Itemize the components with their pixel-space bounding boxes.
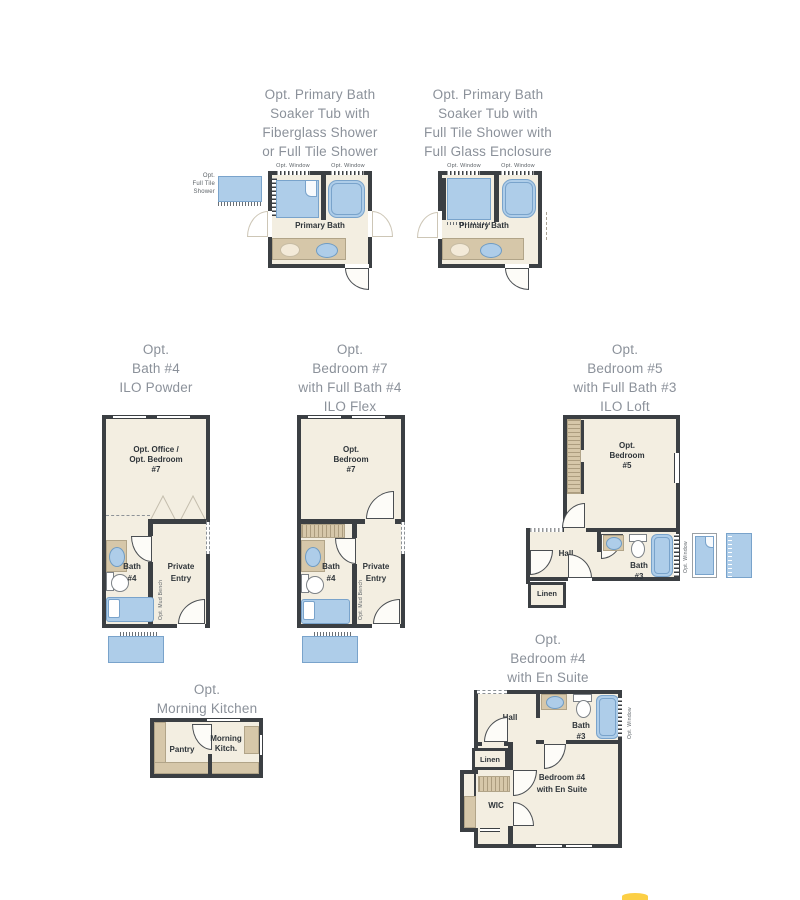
wall [566,740,620,744]
window [536,844,562,848]
tub-rim [331,183,362,215]
bedroom7-plan: Opt. Bedroom #7 Bath #4 Private E [297,415,405,628]
room-label-bedroom7: Opt. Bedroom #7 [301,445,401,475]
title-line: ILO Flex [280,397,420,416]
title-line: Opt. [525,340,725,359]
full-tile-shower-swatch [218,176,262,202]
full-tile-shower [447,178,491,220]
window [113,415,146,419]
window-hatch [674,534,679,577]
optional-tile-shower-diagram [726,533,752,578]
title-line: with Full Bath #3 [525,378,725,397]
plan-title: Opt. Bedroom #7 with Full Bath #4 ILO Fl… [280,340,420,416]
title-line: Opt. [90,340,222,359]
tub-pillow [303,601,315,620]
sink [606,537,622,550]
title-line: ILO Loft [525,397,725,416]
shower-seat [705,536,714,548]
counter [154,762,259,774]
room-label-linen: Linen [472,754,508,766]
window [480,828,500,832]
door-opening [177,624,205,628]
title-line: Bedroom #7 [280,359,420,378]
plan-title: Opt. Bath #4 ILO Powder [90,340,222,397]
window [308,415,341,419]
room-label-bedroom5: Opt. Bedroom #5 [587,441,667,471]
room-label-bath4: Bath #4 [112,561,152,585]
door-swing [366,491,394,519]
title-line: ILO Powder [90,378,222,397]
window-hatch [618,698,622,738]
title-line: Bedroom #5 [525,359,725,378]
toilet-bowl [576,700,591,718]
tile-wall [442,178,446,220]
room-label-private-entry: Private Entry [160,561,202,585]
sink [546,696,564,709]
wall [321,175,326,220]
window [500,171,534,175]
wall [508,742,513,770]
door-swing [247,211,268,237]
title-line: or Full Tile Shower [240,142,400,161]
title-line: Soaker Tub with [408,104,568,123]
room-label-bath3: Bath #3 [620,560,658,582]
window [276,171,310,175]
title-line: Full Glass Enclosure [408,142,568,161]
opt-window-label-vertical: Opt. Window [627,700,635,746]
door-opening [482,742,504,746]
window-dashed [206,522,210,554]
plan-bedroom4-ensuite: Opt. Bedroom #4 with En Suite Hall Opt. … [440,628,670,858]
opt-window-label: Opt. Window [442,162,486,170]
title-line: Bedroom #4 [478,649,618,668]
title-line: Full Tile Shower with [408,123,568,142]
optional-wall-dashed [106,515,150,516]
optional-sink [280,243,300,257]
window [352,415,385,419]
title-line: Morning Kitchen [137,699,277,718]
closet [567,419,581,494]
door-swing [417,212,438,238]
title-line: Soaker Tub with [240,104,400,123]
room-label-wic: WIC [480,800,512,812]
wall-opening [438,211,442,239]
room-label-bath3: Bath #3 [562,720,600,742]
soaker-tub [328,180,365,218]
window [259,735,263,755]
wall [148,519,206,524]
tub-rim [505,182,533,215]
primary-bath-plan: Primary Bath [268,171,372,268]
opt-window-label: Opt. Window [496,162,540,170]
tile-hatch [218,202,262,206]
door-swing [372,211,393,237]
door-opening [372,624,400,628]
shower-seat [305,180,317,197]
optional-shower-seat-diagram [692,533,717,578]
window [157,415,190,419]
plan-primary-bath-fiberglass: Opt. Primary Bath Soaker Tub with Fiberg… [185,84,405,314]
tub-pillow [108,599,120,618]
wall [508,826,513,844]
title-line: Opt. Primary Bath [240,85,400,104]
plan-title: Opt. Primary Bath Soaker Tub with Full T… [408,85,568,161]
window [330,171,364,175]
tile-hatch [728,535,732,577]
opt-window-label: Opt. Window [271,162,315,170]
door-swing [178,599,205,624]
wall [208,754,212,774]
logo-fragment [622,893,648,900]
door-swing [373,599,400,624]
plan-title: Opt. Bedroom #5 with Full Bath #3 ILO Lo… [525,340,725,416]
room-label-primary-bath: Primary Bath [272,220,368,232]
door-swing [505,268,529,290]
wall [148,524,153,536]
opening-dashed [477,690,507,694]
room-label-primary-bath: Primary Bath [442,220,526,232]
wall [494,175,499,222]
primary-bath-plan: Primary Bath [438,171,542,268]
plan-bath4-ilo-powder: Opt. Bath #4 ILO Powder Opt. Office / Op… [90,338,235,673]
morning-kitchen-plan: Pantry Morning Kitch. [150,718,263,778]
wall-opening [268,211,272,237]
mud-bench-label: Opt. Mud Bench [358,577,366,623]
optional-shower-swatch [108,636,164,663]
sink [480,243,502,258]
wall [581,462,584,494]
closet-rod [478,776,510,792]
title-line: Fiberglass Shower [240,123,400,142]
sink [316,243,338,258]
door-swing [345,268,369,290]
title-line: Opt. Primary Bath [408,85,568,104]
window-dashed [401,522,405,554]
plan-bedroom7-ilo-flex: Opt. Bedroom #7 with Full Bath #4 ILO Fl… [280,338,425,673]
window [566,844,592,848]
mud-bench-label: Opt. Mud Bench [158,577,166,623]
closet-rod [301,524,345,538]
opening-jamb [546,212,547,240]
opt-window-label: Opt. Window [326,162,370,170]
room-label-office: Opt. Office / Opt. Bedroom #7 [106,445,206,475]
title-line: with Full Bath #4 [280,378,420,397]
optional-sink [450,243,470,257]
plan-title: Opt. Morning Kitchen [137,680,277,718]
optional-shower-swatch [302,636,358,663]
wall [352,524,357,538]
toilet-bowl [631,540,645,558]
title-line: Opt. [137,680,277,699]
plan-title: Opt. Bedroom #4 with En Suite [478,630,618,687]
room-label-bedroom4: Bedroom #4 with En Suite [520,772,604,796]
wall [581,420,584,450]
floor-plan-options-sheet: Opt. Primary Bath Soaker Tub with Fiberg… [0,0,800,900]
closet-shelf [464,796,476,828]
tub-rim [599,698,616,736]
room-label-morning-kitchen: Morning Kitch. [204,734,248,754]
window [674,453,680,483]
title-line: Opt. [280,340,420,359]
plan-primary-bath-full-tile: Opt. Primary Bath Soaker Tub with Full T… [408,84,628,314]
door-swing [131,536,152,562]
window [207,718,240,722]
open-rail [526,528,563,532]
wall [536,690,540,718]
title-line: Bath #4 [90,359,222,378]
full-tile-shower-option-label: Opt. Full Tile Shower [185,172,215,196]
title-line: with En Suite [478,668,618,687]
soaker-tub [502,179,536,218]
room-label-bath4: Bath #4 [311,561,351,585]
wall [526,577,568,581]
room-label-pantry: Pantry [162,744,202,756]
title-line: Opt. [478,630,618,649]
room-label-linen: Linen [528,588,566,600]
wall [536,740,544,744]
plan-bedroom5-ilo-loft: Opt. Bedroom #5 with Full Bath #3 ILO Lo… [520,338,780,628]
bath4-plan: Opt. Office / Opt. Bedroom #7 Bath #4 [102,415,210,628]
opt-window-label-vertical: Opt. Window [683,534,691,580]
plan-morning-kitchen: Opt. Morning Kitchen Pantry Morning Kitc… [137,678,282,788]
plan-title: Opt. Primary Bath Soaker Tub with Fiberg… [240,85,400,161]
window [446,171,480,175]
